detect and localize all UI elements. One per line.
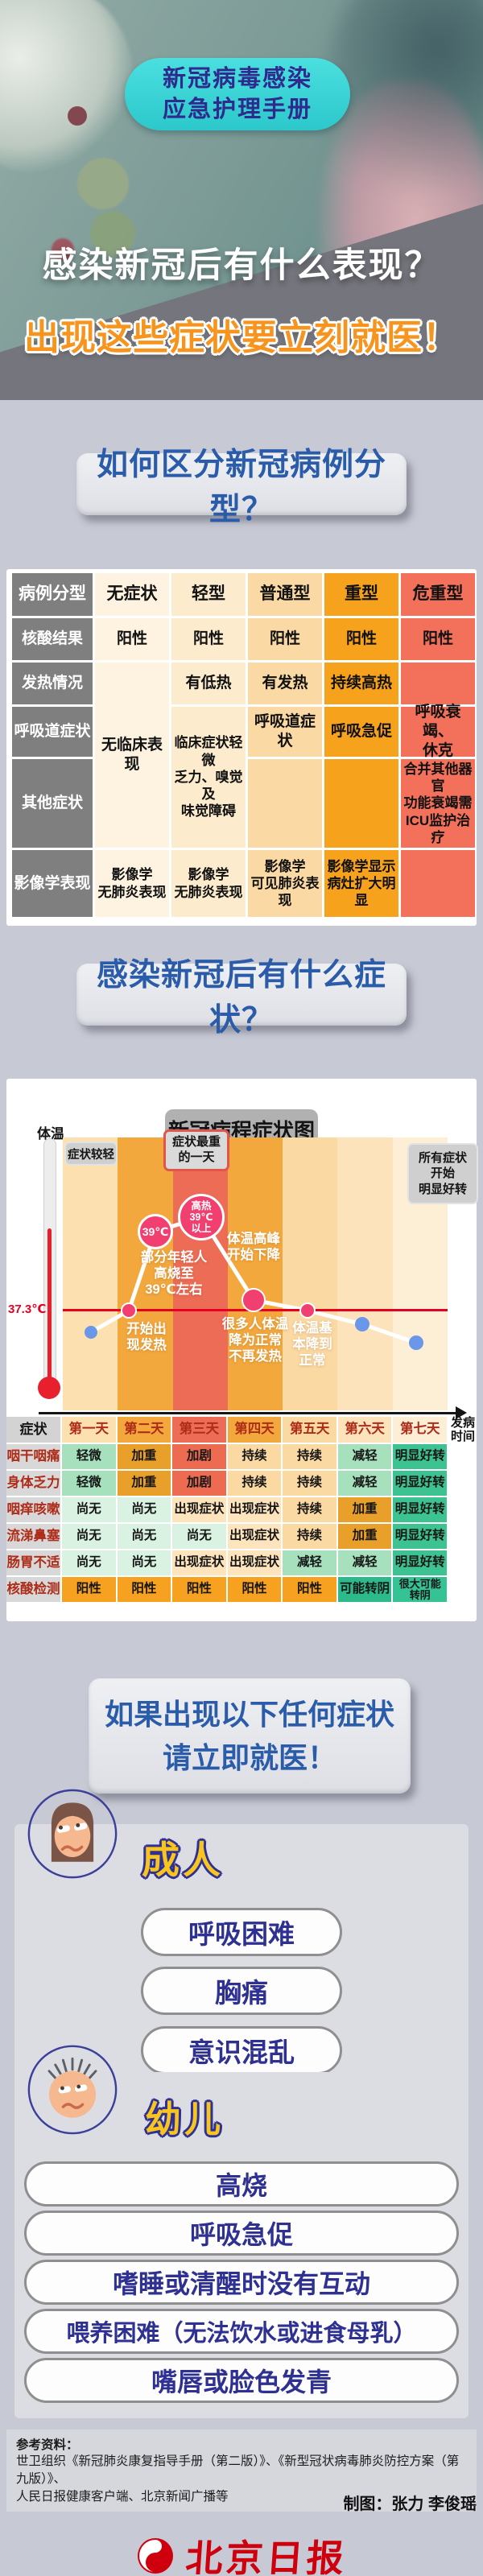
section3-heading: 如果出现以下任何症状 请立即就医！	[89, 1678, 411, 1794]
table-cell: 影像学 可见肺炎表现	[248, 850, 322, 917]
annotation-peak-drop: 体温高峰 开始下降	[197, 1232, 310, 1264]
table-cell: 合并其他器官 功能衰竭需 ICU监护治疗	[401, 759, 475, 848]
x-axis-label: 发病 时间	[451, 1416, 483, 1444]
annotation-basically-normal: 体温基 本降到 正常	[275, 1321, 350, 1368]
badge-line2: 应急护理手册	[163, 94, 312, 125]
table-cell-empty	[401, 850, 475, 917]
symptom-cell: 加重	[338, 1524, 392, 1549]
symptom-cell: 加重	[338, 1497, 392, 1522]
symptom-cell: 阳性	[62, 1577, 116, 1602]
table-cell-empty	[324, 759, 398, 848]
col-header: 危重型	[401, 573, 475, 616]
symptom-cell: 尚无	[62, 1550, 116, 1575]
day-header: 第七天	[393, 1417, 447, 1443]
symptom-label: 咽痒咳嗽	[6, 1497, 60, 1522]
thermometer-bulb	[38, 1377, 60, 1399]
data-point-day7	[409, 1335, 423, 1350]
row-label: 核酸结果	[12, 618, 93, 660]
row-label: 发热情况	[12, 663, 93, 704]
symptom-label: 流涕鼻塞	[6, 1524, 60, 1549]
data-point-day1	[85, 1326, 97, 1339]
child-symptom-pill: 高烧	[24, 2161, 459, 2207]
table-cell: 呼吸急促	[324, 707, 398, 757]
seek-care-line1: 如果出现以下任何症状	[105, 1693, 394, 1736]
row-label: 影像学表现	[12, 850, 93, 917]
row-label: 呼吸道症状	[12, 707, 93, 757]
newspaper-logo: 北京日报	[0, 2529, 483, 2576]
symptom-cell: 持续	[283, 1497, 336, 1522]
data-point-day5	[299, 1302, 316, 1319]
temp-bubble-39: 39℃	[138, 1214, 173, 1249]
credit-line: 制图：张力 李俊瑶	[0, 2491, 477, 2514]
symptom-cell: 尚无	[62, 1497, 116, 1522]
col-header: 无症状	[95, 573, 169, 616]
day-header: 第一天	[62, 1417, 116, 1443]
symptom-cell: 很大可能 转阴	[393, 1577, 447, 1602]
data-point-day6	[355, 1317, 369, 1331]
symptom-cell: 加剧	[172, 1471, 226, 1496]
symptom-cell: 持续	[228, 1471, 282, 1496]
section1-heading: 如何区分新冠病例分型？	[76, 453, 407, 515]
annotation-fever-start: 开始出 现发热	[105, 1322, 188, 1354]
reference-title: 参考资料：	[16, 2435, 467, 2453]
symptom-cell: 明显好转	[393, 1550, 447, 1575]
table-cell: 阳性	[248, 618, 322, 660]
day-header: 第六天	[338, 1417, 392, 1443]
symptom-cell: 出现症状	[172, 1497, 226, 1522]
table-cell: 影像学显示 病灶扩大明显	[324, 850, 398, 917]
symptom-cell: 明显好转	[393, 1524, 447, 1549]
symptom-cell: 可能转阴	[338, 1577, 392, 1602]
data-point-day2	[121, 1302, 137, 1319]
symptom-cell: 持续	[283, 1524, 336, 1549]
symptom-cell: 轻微	[62, 1471, 116, 1496]
col-header: 重型	[324, 573, 398, 616]
day-header: 第四天	[228, 1417, 282, 1443]
child-face-icon	[26, 2041, 119, 2135]
symptom-cell: 出现症状	[228, 1550, 282, 1575]
symptom-cell: 出现症状	[172, 1550, 226, 1575]
child-symptoms-panel: 幼儿 高烧 呼吸急促 嗜睡或清醒时没有互动 喂养困难（无法饮水或进食母乳） 嘴唇…	[14, 2072, 469, 2418]
day-header: 第三天	[172, 1417, 226, 1443]
virus-dot-icon	[68, 106, 87, 126]
section2-heading: 感染新冠后有什么症状？	[76, 964, 407, 1026]
col-header: 病例分型	[12, 573, 93, 616]
col-header: 轻型	[171, 573, 246, 616]
adult-symptom-pill: 胸痛	[141, 1967, 342, 2015]
child-symptom-pill: 嗜睡或清醒时没有互动	[24, 2260, 459, 2305]
symptom-cell: 出现症状	[228, 1524, 282, 1549]
course-chart-panel: 新冠病程症状图 体温 37.3℃ 39℃ 高热 39℃ 以上 症状较轻 症状最重…	[6, 1079, 477, 1621]
symptom-cell: 轻微	[62, 1444, 116, 1469]
phase-badge-mild: 症状较轻	[64, 1141, 118, 1166]
table-cell: 呼吸道症状	[248, 707, 322, 757]
hero-section: 新冠病毒感染 应急护理手册 感染新冠后有什么表现？ 出现这些症状要立刻就医！	[0, 0, 483, 400]
symptom-cell: 加重	[118, 1471, 171, 1496]
main-title: 感染新冠后有什么表现？	[0, 237, 483, 287]
seek-care-line2: 请立即就医！	[163, 1736, 336, 1780]
table-cell-merged: 无临床表现	[95, 663, 169, 848]
beijing-daily-mark-icon	[136, 2537, 175, 2575]
symptom-cell: 尚无	[172, 1524, 226, 1549]
day-header: 第二天	[118, 1417, 171, 1443]
symptom-day-table: 症状 第一天 第二天 第三天 第四天 第五天 第六天 第七天 咽干咽痛 轻微 加…	[6, 1417, 447, 1602]
symptom-cell: 减轻	[338, 1550, 392, 1575]
symptom-label: 身体乏力	[6, 1471, 60, 1496]
row-label: 其他症状	[12, 759, 93, 848]
x-axis-line	[39, 1412, 459, 1414]
symptom-cell: 尚无	[118, 1550, 171, 1575]
child-symptom-pill: 呼吸急促	[24, 2211, 459, 2256]
symptom-cell: 尚无	[118, 1497, 171, 1522]
table-cell: 阳性	[171, 618, 246, 660]
symptom-cell: 减轻	[338, 1471, 392, 1496]
day-header: 第五天	[283, 1417, 336, 1443]
table-cell-empty	[248, 759, 322, 848]
phase-badge-recovery: 所有症状 开始 明显好转	[407, 1143, 478, 1204]
symptom-cell: 尚无	[118, 1524, 171, 1549]
table-cell-empty	[401, 663, 475, 704]
adult-title: 成人	[142, 1829, 224, 1885]
handbook-badge: 新冠病毒感染 应急护理手册	[125, 58, 350, 130]
infographic-root: 新冠病毒感染 应急护理手册 感染新冠后有什么表现？ 出现这些症状要立刻就医！ 如…	[0, 0, 483, 2576]
symptom-cell: 持续	[228, 1444, 282, 1469]
adult-symptom-pill: 意识混乱	[141, 2026, 342, 2074]
thermometer-mercury	[47, 1228, 52, 1385]
phase-badge-worst-day: 症状最重 的一天	[163, 1129, 229, 1171]
table-cell: 影像学 无肺炎表现	[171, 850, 246, 917]
symptom-cell: 持续	[283, 1444, 336, 1469]
corner-header: 症状	[6, 1417, 60, 1443]
classification-table-panel: 病例分型 无症状 轻型 普通型 重型 危重型 核酸结果 阳性 阳性 阳性 阳性 …	[6, 569, 477, 926]
table-cell: 阳性	[401, 618, 475, 660]
badge-line1: 新冠病毒感染	[163, 64, 312, 94]
temperature-curve	[63, 1137, 448, 1410]
symptom-cell: 阳性	[283, 1577, 336, 1602]
sub-title: 出现这些症状要立刻就医！	[0, 308, 483, 360]
symptom-cell: 明显好转	[393, 1497, 447, 1522]
symptom-cell: 阳性	[228, 1577, 282, 1602]
child-title: 幼儿	[145, 2090, 224, 2142]
symptom-cell: 阳性	[118, 1577, 171, 1602]
virus-blob-icon	[0, 0, 133, 173]
symptom-cell: 明显好转	[393, 1471, 447, 1496]
symptom-cell: 阳性	[172, 1577, 226, 1602]
symptom-cell: 持续	[283, 1471, 336, 1496]
fever-threshold-label: 37.3℃	[8, 1302, 45, 1316]
table-cell: 持续高热	[324, 663, 398, 704]
symptom-cell: 减轻	[283, 1550, 336, 1575]
adult-symptom-pill: 呼吸困难	[141, 1908, 342, 1956]
adult-face-icon	[26, 1787, 119, 1880]
symptom-cell: 尚无	[62, 1524, 116, 1549]
table-cell: 呼吸衰竭、 休克	[401, 707, 475, 757]
symptom-label: 核酸检测	[6, 1577, 60, 1602]
child-symptom-pill: 嘴唇或脸色发青	[24, 2358, 459, 2403]
symptom-label: 咽干咽痛	[6, 1444, 60, 1469]
table-cell: 有低热	[171, 663, 246, 704]
table-cell: 阳性	[95, 618, 169, 660]
symptom-label: 肠胃不适	[6, 1550, 60, 1575]
background-shade	[330, 0, 483, 233]
newspaper-logo-text: 北京日报	[184, 2529, 349, 2576]
symptom-cell: 明显好转	[393, 1444, 447, 1469]
child-symptom-pill: 喂养困难（无法饮水或进食母乳）	[24, 2309, 459, 2354]
table-cell-merged: 临床症状轻微 乏力、嗅觉及 味觉障碍	[171, 707, 246, 848]
table-cell: 有发热	[248, 663, 322, 704]
virus-green-icon	[77, 158, 129, 209]
symptom-cell: 加剧	[172, 1444, 226, 1469]
table-cell: 阳性	[324, 618, 398, 660]
data-point-day4	[242, 1288, 266, 1312]
symptom-cell: 加重	[118, 1444, 171, 1469]
classification-table: 病例分型 无症状 轻型 普通型 重型 危重型 核酸结果 阳性 阳性 阳性 阳性 …	[12, 573, 475, 917]
table-cell: 影像学 无肺炎表现	[95, 850, 169, 917]
col-header: 普通型	[248, 573, 322, 616]
symptom-cell: 减轻	[338, 1444, 392, 1469]
symptom-cell: 出现症状	[228, 1497, 282, 1522]
